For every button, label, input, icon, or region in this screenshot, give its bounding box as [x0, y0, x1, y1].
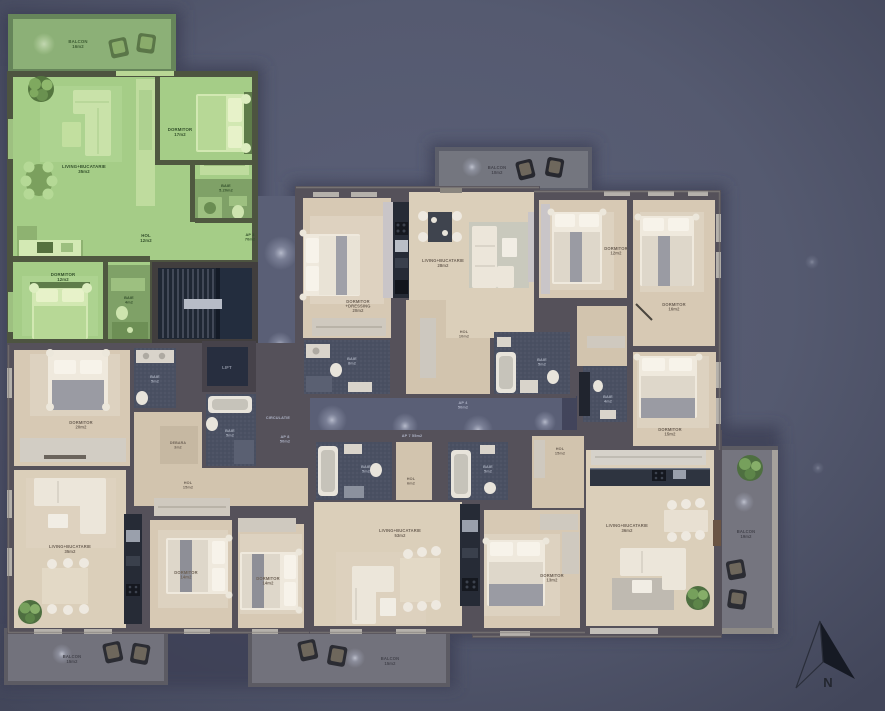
svg-text:BAIE: BAIE	[361, 465, 371, 469]
svg-text:DEBARA: DEBARA	[170, 441, 187, 445]
svg-text:12m2: 12m2	[610, 251, 622, 256]
svg-text:13m2: 13m2	[546, 578, 558, 583]
svg-text:AP 3: AP 3	[246, 233, 255, 237]
svg-text:50m2: 50m2	[458, 406, 468, 410]
svg-text:12m2: 12m2	[140, 238, 152, 243]
svg-text:20m2: 20m2	[75, 425, 87, 430]
svg-text:12m2: 12m2	[57, 277, 69, 282]
svg-text:17m2: 17m2	[174, 132, 186, 137]
svg-text:35m2: 35m2	[78, 169, 90, 174]
svg-text:BAIE: BAIE	[150, 375, 160, 379]
svg-text:10m2: 10m2	[491, 170, 503, 175]
svg-text:5m2: 5m2	[226, 434, 234, 438]
svg-text:BAIE: BAIE	[537, 358, 547, 362]
svg-text:BAIE: BAIE	[221, 184, 231, 188]
svg-text:HOL: HOL	[556, 447, 565, 451]
svg-text:15m2: 15m2	[384, 661, 396, 666]
svg-text:5m2: 5m2	[151, 380, 159, 384]
svg-text:28m2: 28m2	[437, 263, 449, 268]
svg-text:19m2: 19m2	[740, 534, 752, 539]
svg-text:N: N	[823, 675, 833, 690]
svg-text:20m2: 20m2	[352, 308, 364, 313]
svg-text:4m2: 4m2	[604, 400, 612, 404]
svg-text:LIFT: LIFT	[222, 365, 232, 370]
svg-text:5.20m2: 5.20m2	[219, 189, 233, 193]
svg-text:BAIE: BAIE	[347, 357, 357, 361]
svg-text:HOL: HOL	[184, 481, 193, 485]
svg-text:AP 4: AP 4	[459, 401, 469, 405]
svg-text:15m2: 15m2	[66, 659, 78, 664]
svg-text:14m2: 14m2	[262, 581, 274, 586]
svg-text:16m2: 16m2	[72, 44, 84, 49]
svg-text:70m2: 70m2	[245, 238, 255, 242]
svg-text:AP 8: AP 8	[281, 435, 290, 439]
svg-text:10m2: 10m2	[459, 335, 469, 339]
svg-text:BAIE: BAIE	[483, 465, 493, 469]
svg-text:16m2: 16m2	[668, 307, 680, 312]
svg-text:35m2: 35m2	[64, 549, 76, 554]
svg-text:5m2: 5m2	[362, 470, 370, 474]
svg-text:15m2: 15m2	[555, 452, 565, 456]
svg-text:BAIE: BAIE	[124, 296, 134, 300]
svg-text:53m2: 53m2	[394, 533, 406, 538]
svg-text:5m2: 5m2	[538, 363, 546, 367]
svg-text:3m2: 3m2	[174, 446, 182, 450]
svg-text:15m2: 15m2	[183, 486, 193, 490]
svg-text:CIRCULATIE: CIRCULATIE	[266, 416, 291, 420]
svg-text:8m2: 8m2	[348, 362, 356, 366]
svg-text:4m2: 4m2	[125, 301, 133, 305]
svg-text:BAIE: BAIE	[603, 395, 613, 399]
svg-text:5m2: 5m2	[484, 470, 492, 474]
svg-text:6m2: 6m2	[407, 482, 415, 486]
svg-text:14m2: 14m2	[180, 575, 192, 580]
svg-text:HOL: HOL	[460, 330, 469, 334]
svg-text:HOL: HOL	[407, 477, 416, 481]
svg-text:50m2: 50m2	[280, 440, 290, 444]
svg-text:15m2: 15m2	[664, 432, 676, 437]
svg-text:36m2: 36m2	[621, 528, 633, 533]
svg-text:BAIE: BAIE	[225, 429, 235, 433]
svg-text:AP 7 55m2: AP 7 55m2	[402, 434, 423, 438]
